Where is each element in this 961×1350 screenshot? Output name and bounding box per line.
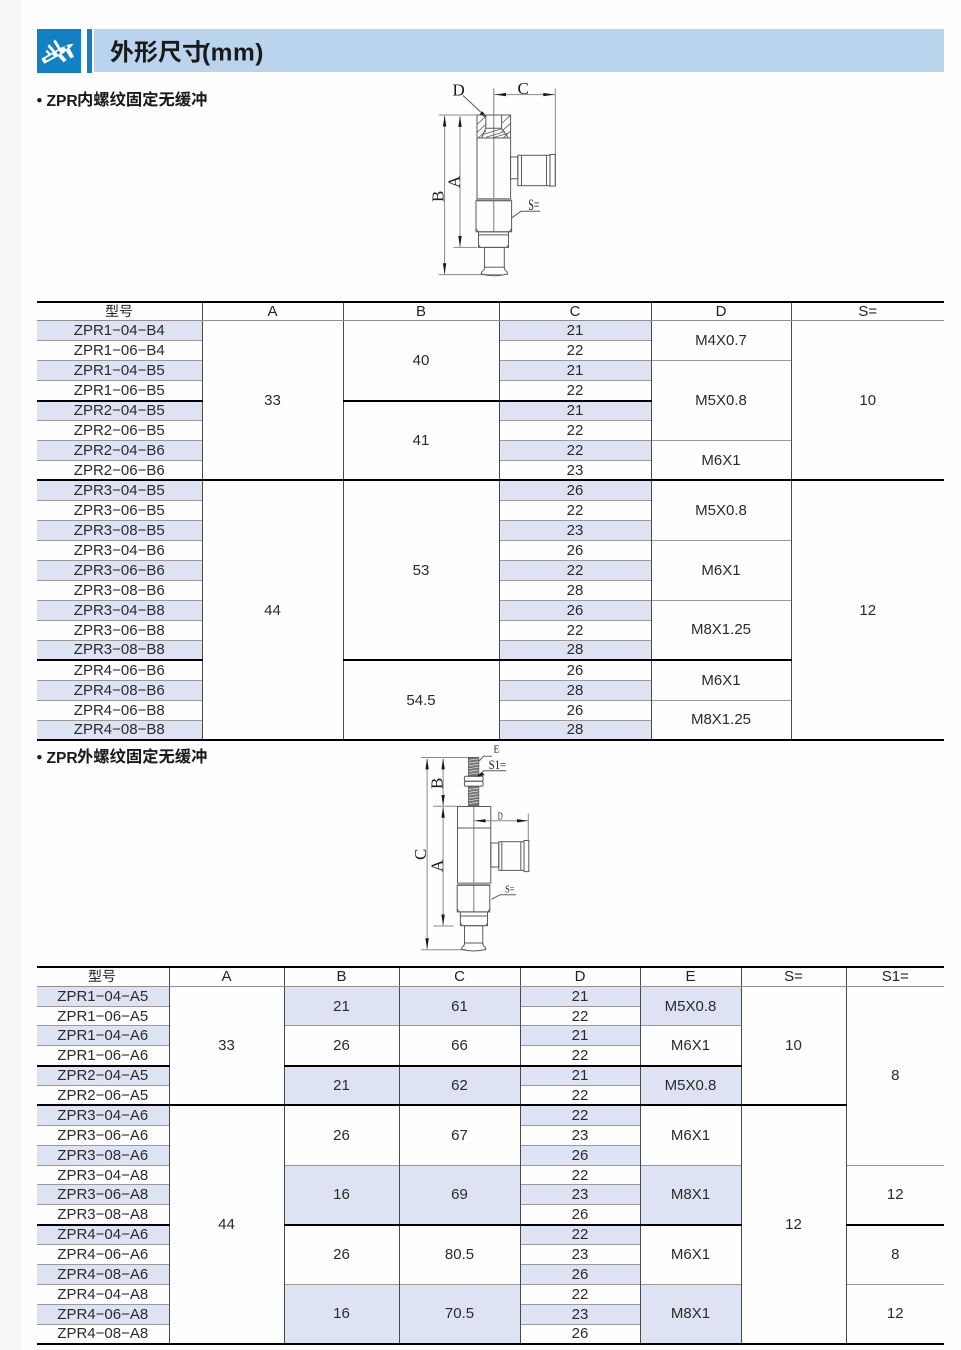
svg-text:A: A (445, 175, 464, 188)
svg-text:S=: S= (505, 884, 515, 895)
svg-text:S1=: S1= (489, 758, 507, 772)
svg-text:E: E (494, 745, 500, 756)
svg-text:(mm): (mm) (202, 40, 264, 67)
svg-text:B: B (429, 191, 448, 202)
svg-text:B: B (428, 778, 447, 789)
svg-text:C: C (411, 849, 430, 860)
svg-text:ZPR: ZPR (47, 750, 78, 767)
svg-text:A: A (428, 859, 447, 872)
svg-text:D: D (498, 811, 503, 822)
svg-text:C: C (518, 82, 529, 98)
svg-text:ZPR: ZPR (47, 93, 78, 110)
svg-text:D: D (453, 82, 465, 100)
